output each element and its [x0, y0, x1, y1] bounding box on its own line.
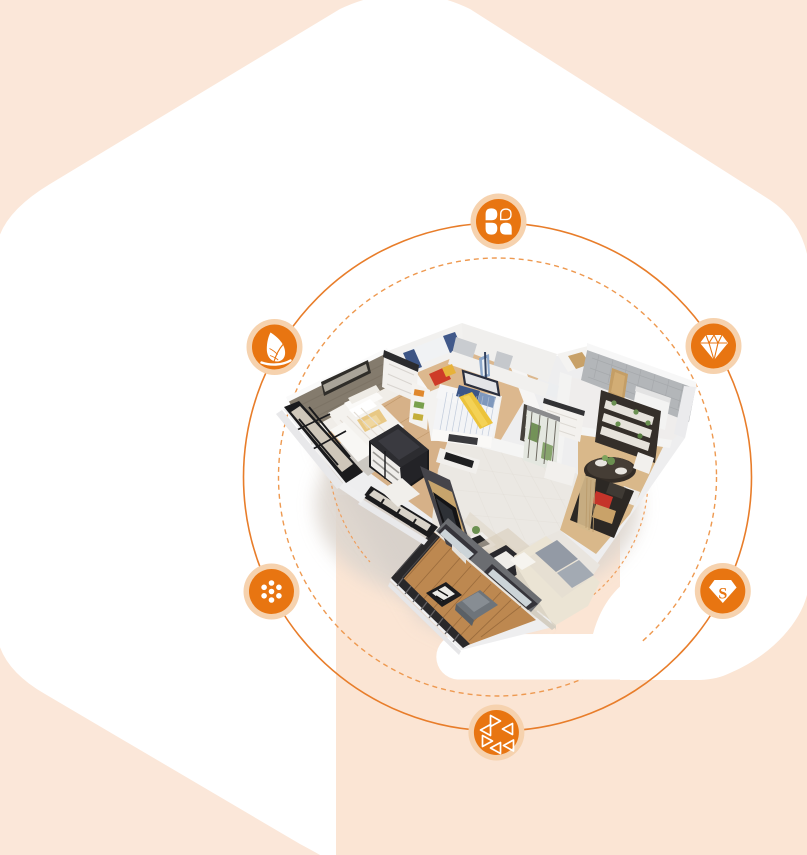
svg-text:S: S — [718, 586, 727, 603]
